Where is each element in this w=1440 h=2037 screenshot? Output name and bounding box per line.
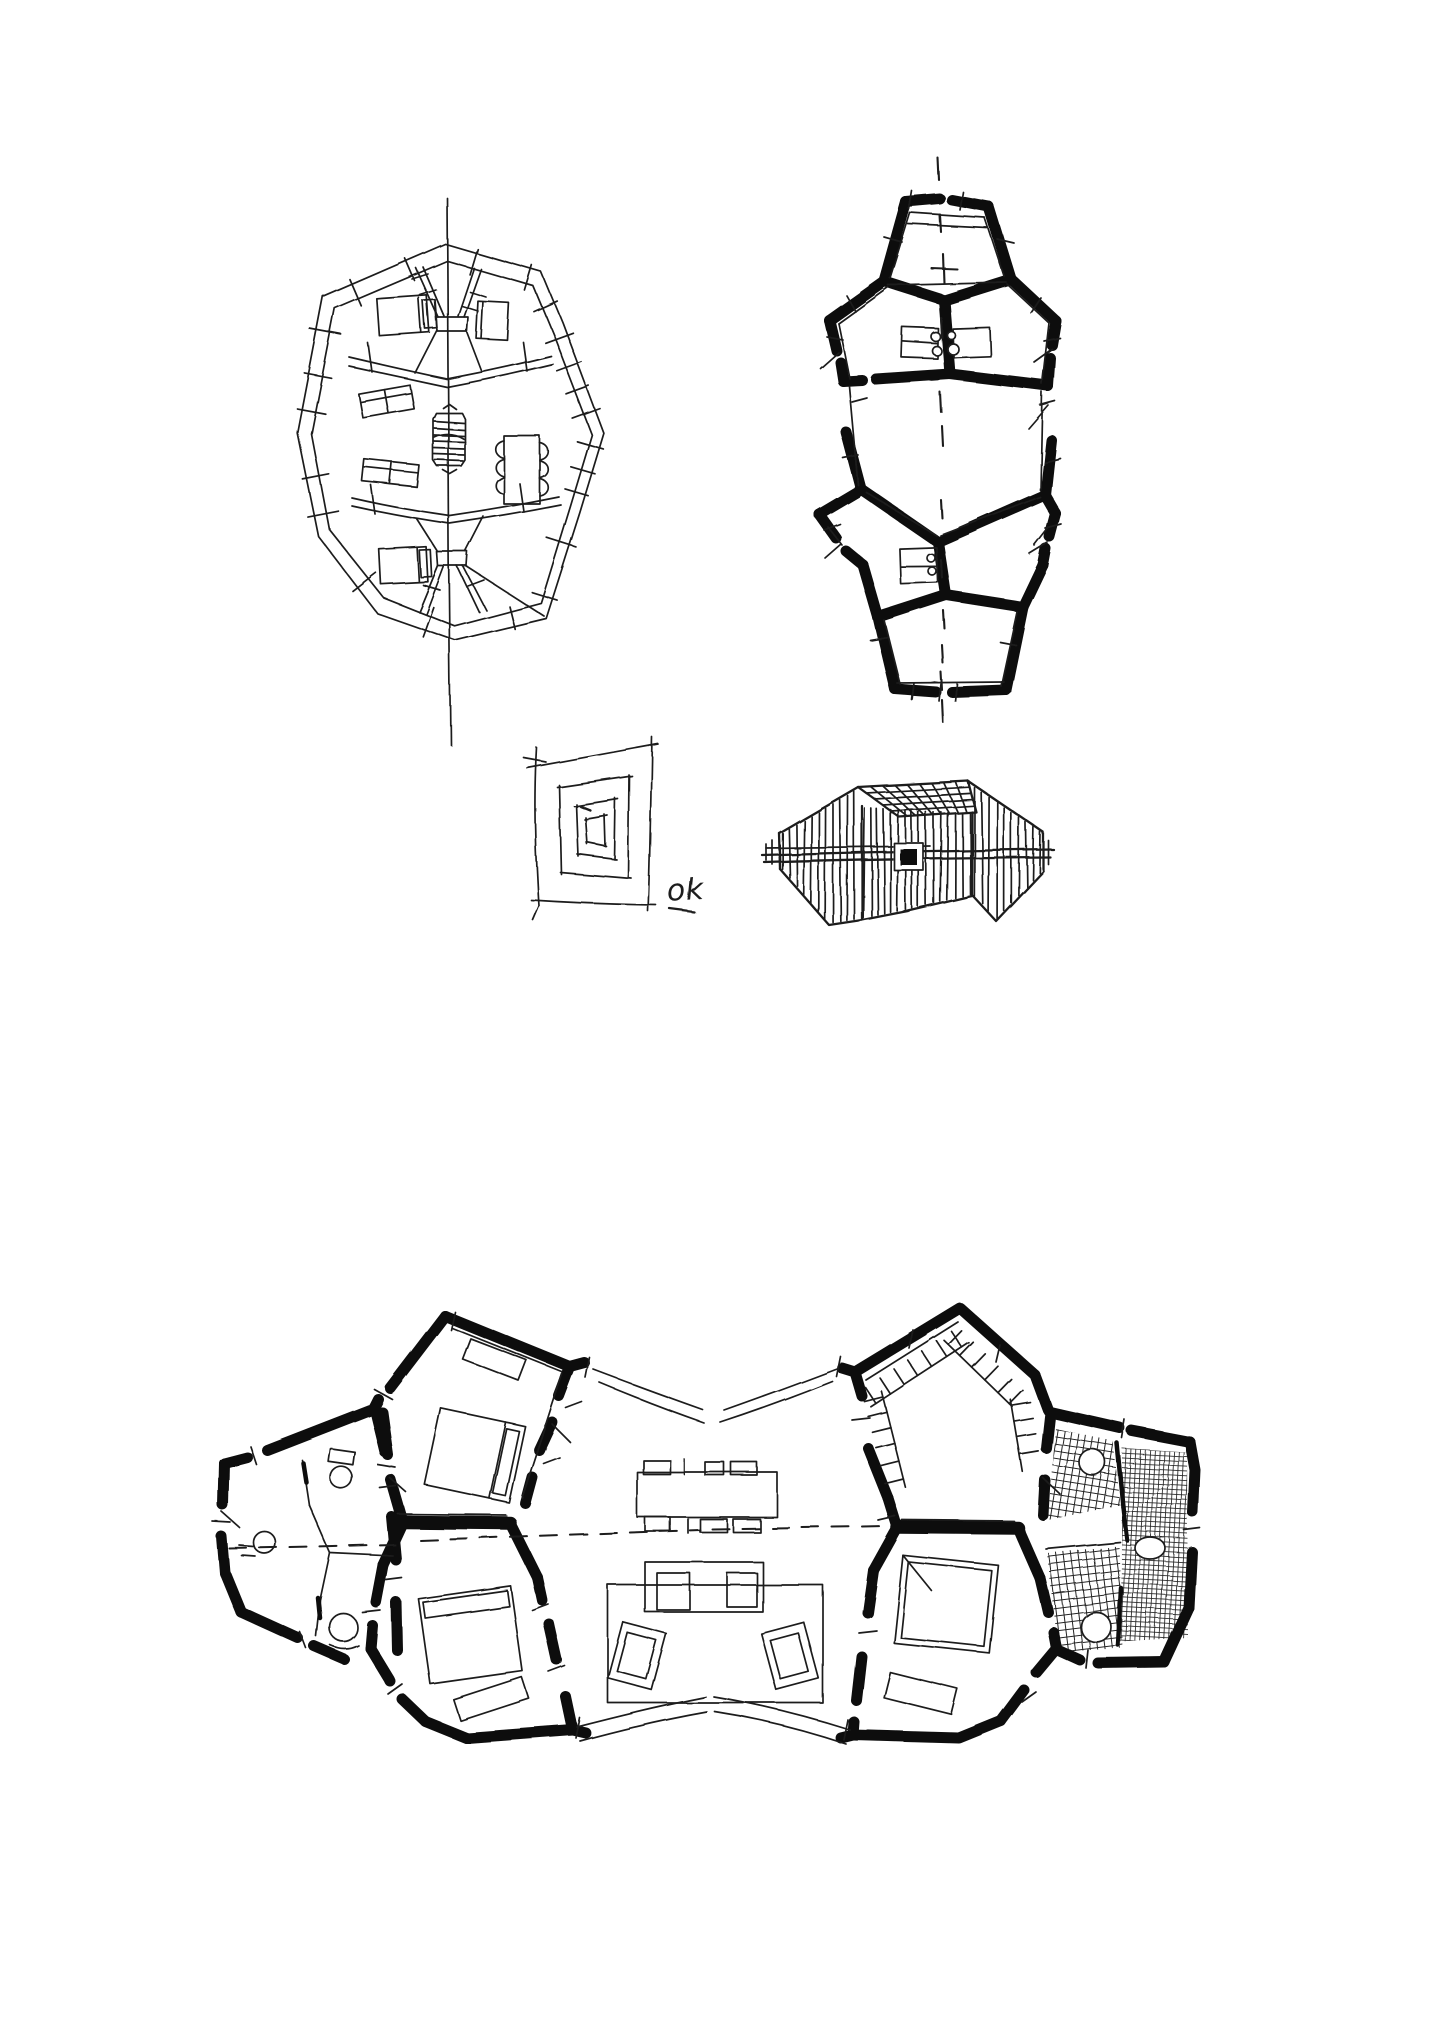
dining-table bbox=[637, 1459, 777, 1533]
sofa-left-1 bbox=[358, 385, 413, 418]
sketch-canvas: ok bbox=[0, 0, 1440, 2037]
bed-upper-right bbox=[476, 301, 509, 340]
chimney-black-square bbox=[900, 849, 917, 865]
sofa bbox=[645, 1562, 763, 1612]
armchair-left bbox=[608, 1622, 666, 1690]
chair bbox=[705, 1462, 724, 1475]
washbasin bbox=[254, 1532, 276, 1554]
burner bbox=[927, 554, 935, 562]
toilet bbox=[329, 1613, 357, 1641]
sofa-cushion bbox=[727, 1573, 757, 1607]
burner bbox=[947, 331, 955, 339]
plan-large-thin bbox=[213, 1312, 1200, 1744]
plan-bold-axis bbox=[931, 158, 957, 722]
chair bbox=[731, 1462, 757, 1475]
bed-lower-left-room bbox=[418, 1586, 522, 1684]
toilet bbox=[1081, 1612, 1111, 1642]
sofa-left-2 bbox=[362, 459, 419, 487]
figure-plan-light bbox=[297, 198, 604, 745]
plan-light-furniture bbox=[358, 295, 548, 584]
burner bbox=[933, 347, 942, 356]
sofa-group bbox=[608, 1562, 823, 1703]
bed-upper-left bbox=[377, 295, 437, 336]
burner bbox=[932, 333, 941, 342]
figure-nested-squares: ok bbox=[524, 737, 706, 920]
wc-cell-upper bbox=[1048, 1428, 1120, 1520]
chair bbox=[733, 1519, 760, 1532]
chair bbox=[700, 1519, 727, 1532]
nested-squares-strokes bbox=[524, 737, 658, 920]
bed-upper-left-room bbox=[425, 1408, 525, 1502]
chimney bbox=[893, 842, 923, 870]
figure-plan-bold bbox=[819, 158, 1062, 722]
plan-large-walls bbox=[222, 1308, 1195, 1738]
plan-light-axis bbox=[447, 198, 451, 745]
figure-massing bbox=[762, 781, 1053, 925]
toilet bbox=[1079, 1449, 1105, 1475]
figure-plan-large bbox=[213, 1308, 1200, 1744]
armchair-right bbox=[761, 1622, 819, 1689]
washbasin bbox=[1135, 1537, 1165, 1559]
chair bbox=[645, 1517, 670, 1531]
sketch-page: ok bbox=[0, 0, 1440, 2037]
bench-lower-left bbox=[453, 1677, 528, 1720]
bed-lower-right-room bbox=[894, 1555, 999, 1653]
burner bbox=[928, 567, 936, 575]
ok-annotation: ok bbox=[666, 872, 706, 912]
kitchen-counter-right bbox=[953, 327, 991, 357]
burner bbox=[948, 344, 959, 355]
ok-text: ok bbox=[666, 872, 706, 910]
plan-large-axis bbox=[230, 1526, 890, 1549]
bench-lower-right bbox=[884, 1672, 958, 1714]
sofa-cushion bbox=[657, 1573, 690, 1610]
kitchen-counter-lower bbox=[899, 547, 937, 583]
toilet-with-tank bbox=[325, 1448, 356, 1489]
bed-lower bbox=[379, 547, 432, 585]
